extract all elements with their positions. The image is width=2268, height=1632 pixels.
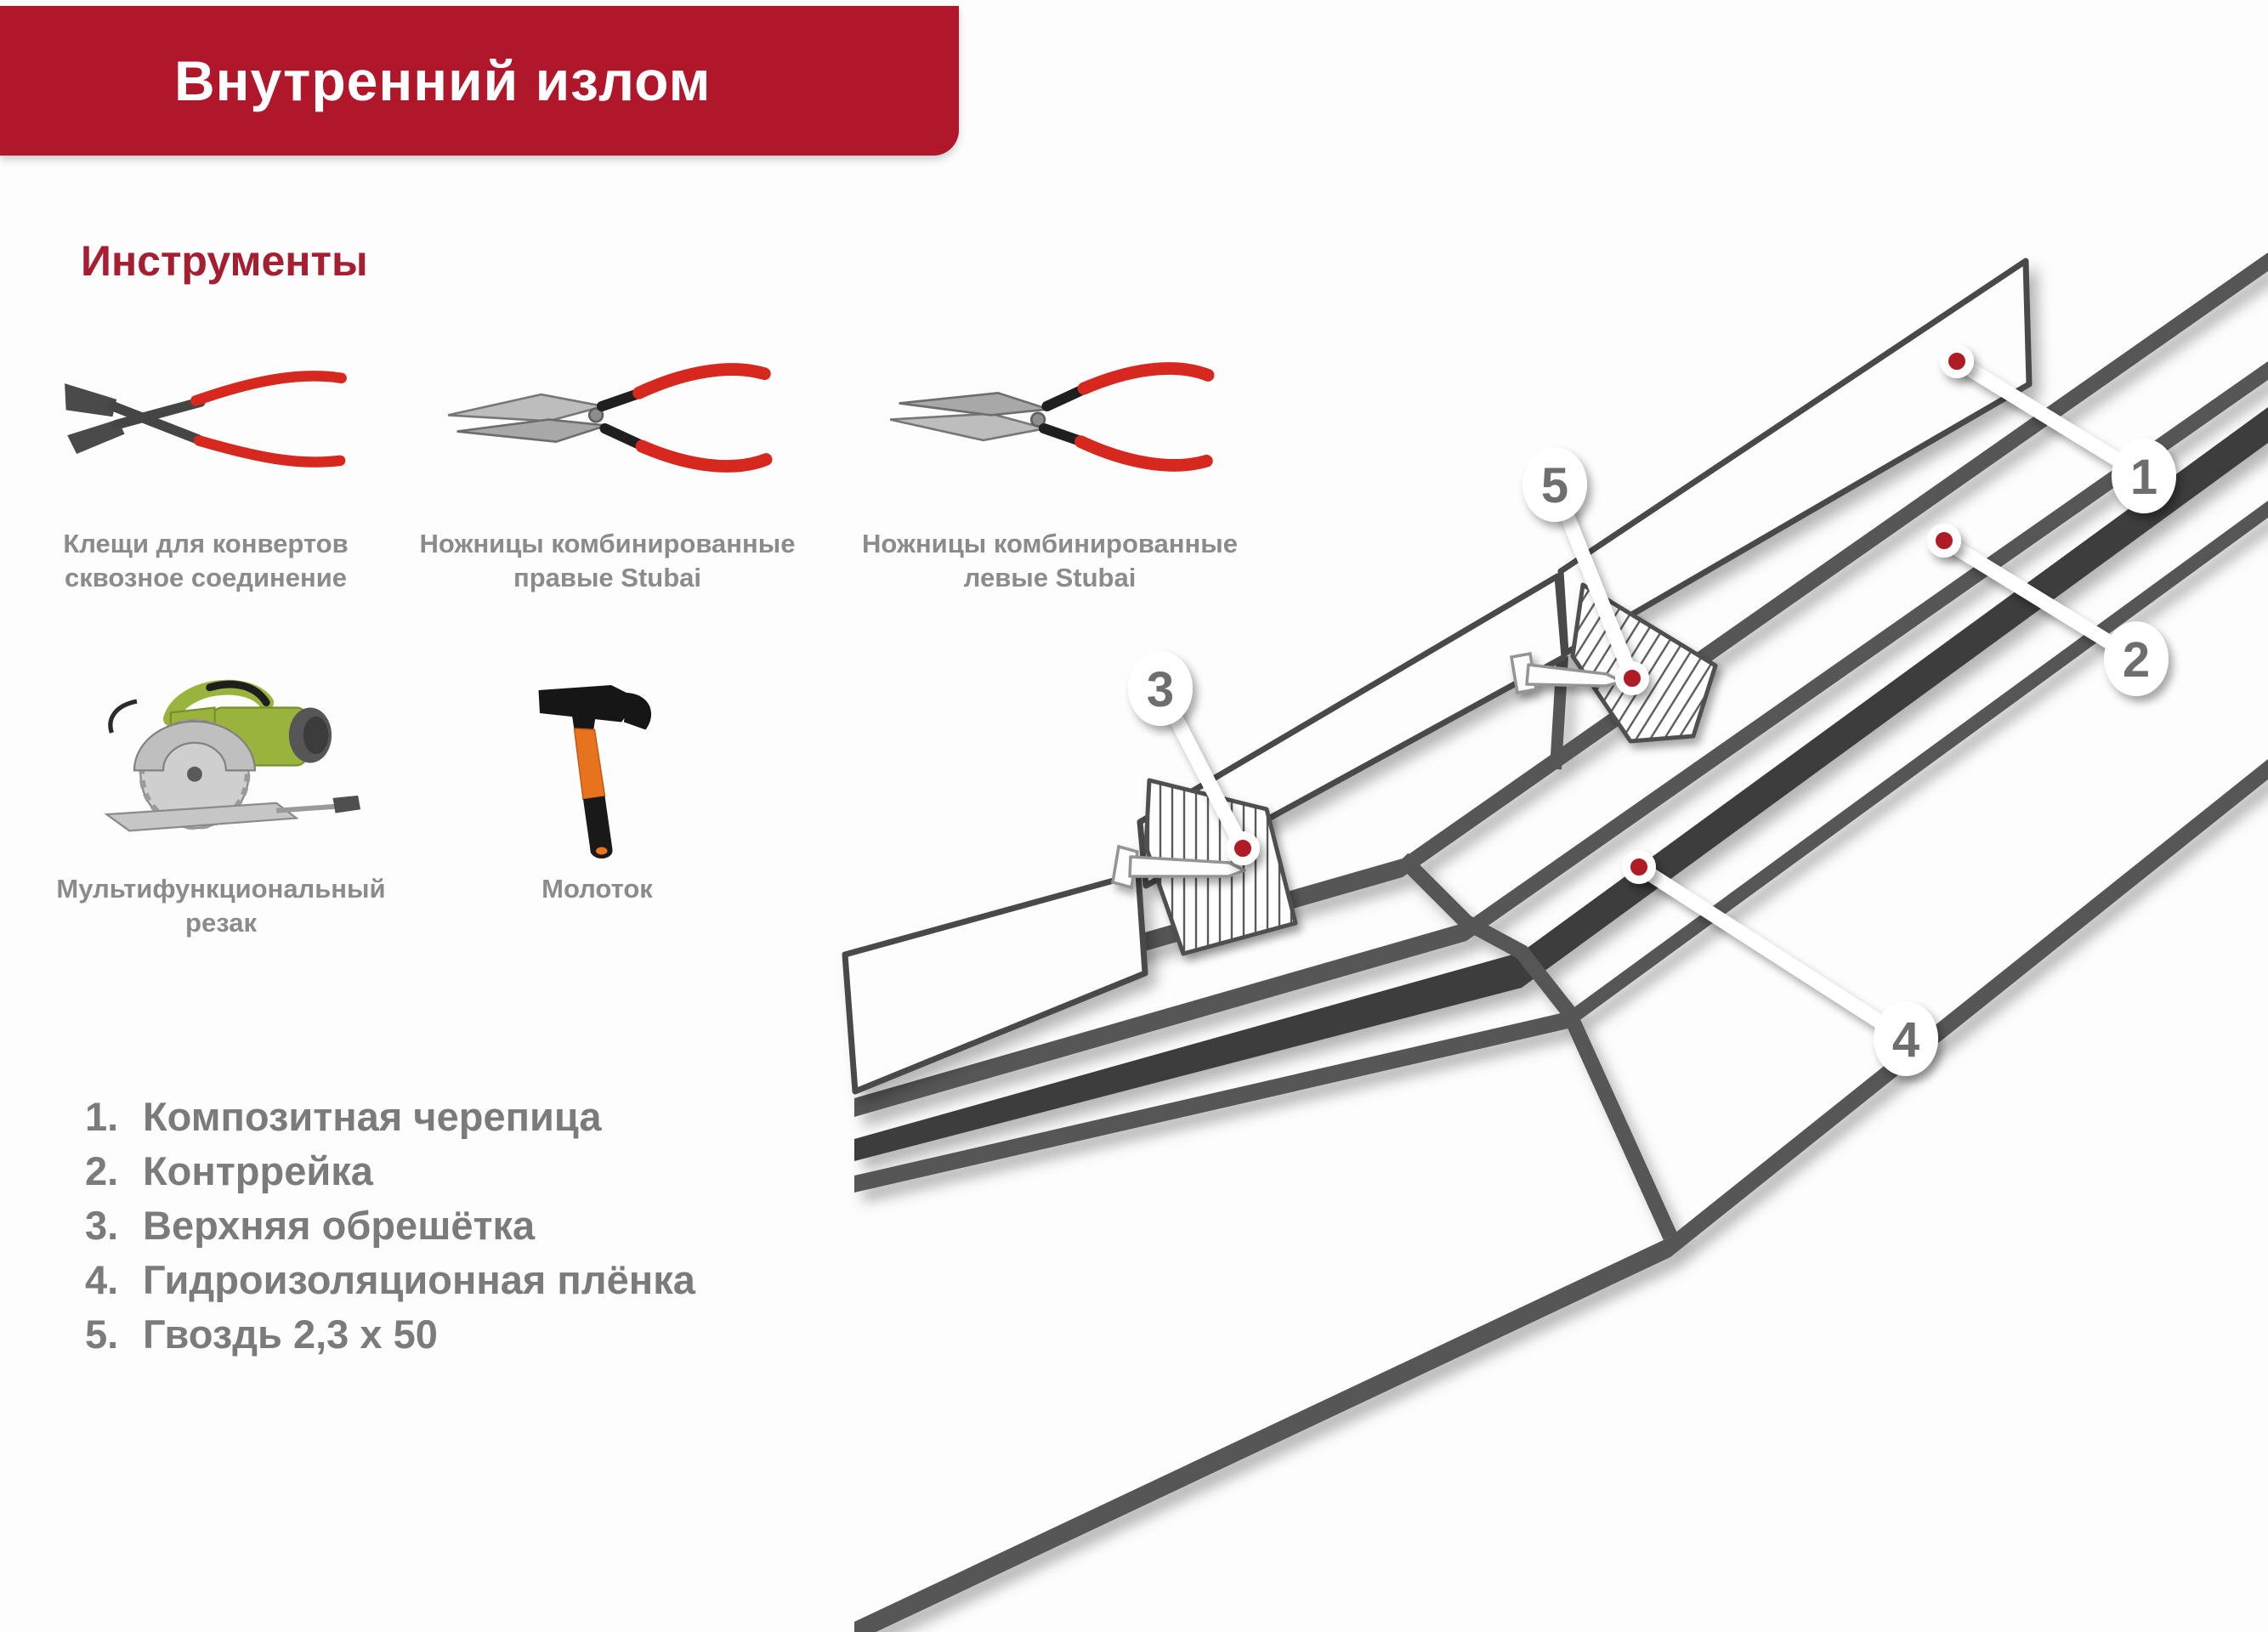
legend-item-number: 4.	[85, 1256, 143, 1303]
callout-number-1: 1	[2130, 450, 2157, 505]
legend-item: 2. Контррейка	[85, 1147, 695, 1194]
tool-label: Молоток	[429, 872, 765, 906]
legend-item-text: Гидроизоляционная плёнка	[143, 1256, 695, 1303]
tool-item-snips-left: Ножницы комбинированные левые Stubai	[820, 308, 1279, 595]
hammer-icon	[429, 653, 765, 872]
marker-dot-3	[1230, 836, 1256, 861]
legend-list: 1. Композитная черепица 2. Контррейка 3.…	[85, 1093, 695, 1365]
tool-label: Мультифункциональный резак	[26, 872, 417, 940]
marker-dot-2	[1931, 528, 1957, 553]
legend-item-text: Верхняя обрешётка	[143, 1202, 535, 1249]
legend-item: 1. Композитная черепица	[85, 1093, 695, 1140]
tool-item-seaming-pliers: Клещи для конвертов сквозное соединение	[19, 308, 393, 595]
callout-number-3: 3	[1147, 662, 1174, 717]
legend-item-number: 1.	[85, 1093, 143, 1140]
legend-item: 3. Верхняя обрешётка	[85, 1202, 695, 1249]
tool-item-hammer: Молоток	[429, 653, 765, 906]
page-title-banner: Внутренний излом	[0, 6, 959, 156]
legend-item-text: Гвоздь 2,3 х 50	[143, 1311, 438, 1357]
tool-label: Ножницы комбинированные левые Stubai	[820, 527, 1279, 595]
marker-dot-5	[1619, 666, 1645, 691]
callout-number-2: 2	[2123, 632, 2150, 688]
legend-item-number: 3.	[85, 1202, 143, 1249]
tool-item-snips-right: Ножницы комбинированные правые Stubai	[393, 308, 822, 595]
slide-page: 1 2 3 4 5 Внутренний излом Инструменты	[0, 0, 2268, 1632]
legend-item-text: Композитная черепица	[143, 1093, 601, 1140]
rafter-line	[854, 759, 2268, 1632]
callout-number-5: 5	[1541, 458, 1568, 513]
callout-number-4: 4	[1892, 1012, 1919, 1068]
tool-label: Клещи для конвертов сквозное соединение	[19, 527, 393, 595]
legend-item: 4. Гидроизоляционная плёнка	[85, 1256, 695, 1303]
page-title: Внутренний излом	[0, 48, 711, 113]
legend-item-text: Контррейка	[143, 1147, 373, 1194]
seaming-pliers-icon	[19, 308, 393, 527]
snips-right-icon	[393, 308, 822, 527]
tool-item-circular-saw: Мультифункциональный резак	[26, 653, 417, 940]
leader-line-4	[1639, 867, 1906, 1039]
tool-label: Ножницы комбинированные правые Stubai	[393, 527, 822, 595]
snips-left-icon	[820, 308, 1279, 527]
legend-item-number: 2.	[85, 1147, 143, 1194]
legend-item-number: 5.	[85, 1311, 143, 1357]
section-heading-tools: Инструменты	[81, 236, 368, 286]
marker-dot-1	[1944, 348, 1970, 374]
legend-item: 5. Гвоздь 2,3 х 50	[85, 1311, 695, 1357]
marker-dot-4	[1626, 854, 1652, 880]
circular-saw-icon	[26, 653, 417, 872]
